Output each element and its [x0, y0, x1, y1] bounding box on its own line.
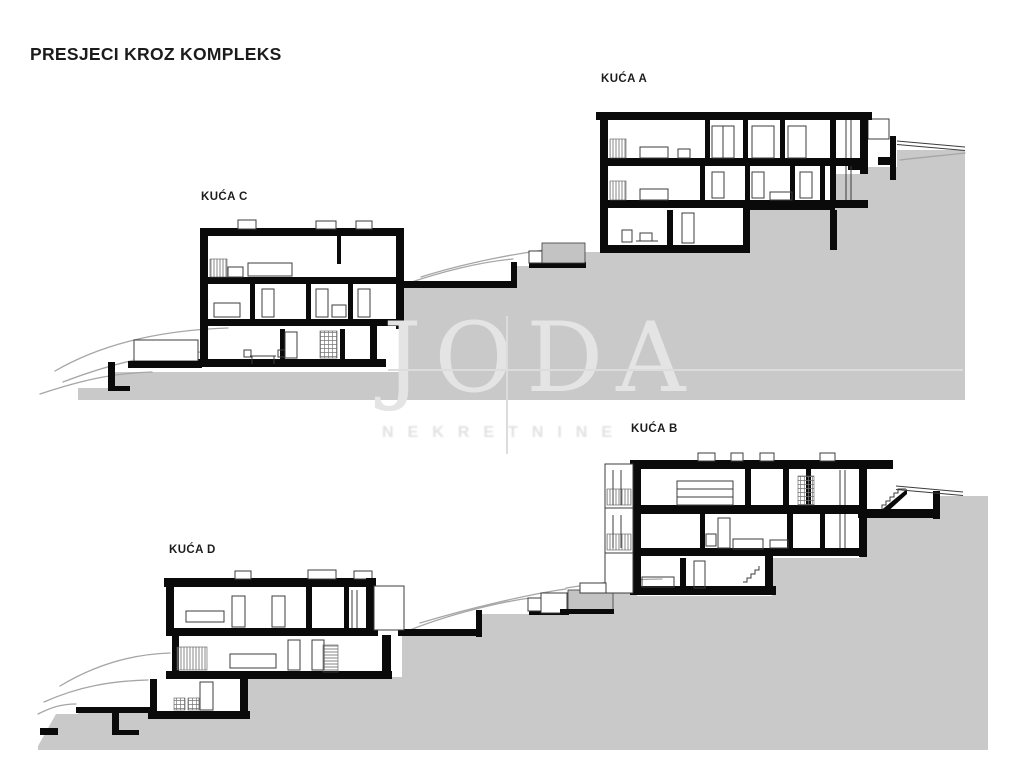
page-title: PRESJECI KROZ KOMPLEKS [30, 44, 282, 65]
label-kuca-b: KUĆA B [631, 423, 678, 435]
label-kuca-d: KUĆA D [169, 544, 216, 556]
blueprint-page: JODA NEKRETNINE PRESJECI KROZ KOMPLEKS K… [0, 0, 1024, 768]
house-c-section [128, 220, 404, 368]
section-drawing [0, 0, 1024, 768]
label-kuca-c: KUĆA C [201, 191, 248, 203]
label-kuca-a: KUĆA A [601, 73, 647, 85]
